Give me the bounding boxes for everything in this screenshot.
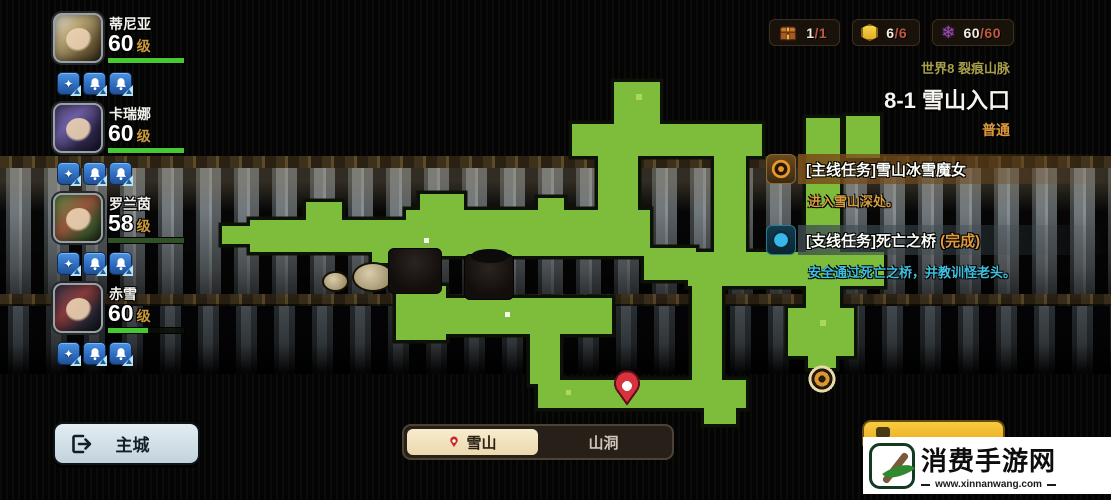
upgrade-arrow-icon <box>122 355 133 366</box>
party-member-2: 卡瑞娜 60级 ✦ <box>0 103 210 191</box>
difficulty-label: 普通 <box>884 120 1010 140</box>
npc-sprite <box>388 248 442 294</box>
tab-label: 雪山 <box>466 432 496 453</box>
objective-marker <box>810 367 834 391</box>
site-watermark: 消费手游网 www.xinnanwang.com <box>863 437 1111 494</box>
rock-sprite <box>322 271 349 292</box>
quest-title: [主线任务]雪山冰雪魔女 <box>806 159 966 180</box>
avatar-face <box>66 118 92 142</box>
upgrade-arrow-icon <box>122 265 133 276</box>
honeycomb-icon <box>861 24 878 41</box>
upgrade-arrow-icon <box>70 175 81 186</box>
area-tabs: 雪山 山洞 <box>402 424 674 460</box>
location-pin-icon <box>448 436 460 448</box>
upgrade-arrow-icon <box>122 85 133 96</box>
avatar-face <box>66 298 92 322</box>
resource-bar: 1/1 6/6 ❄ 60/60 <box>769 19 1014 46</box>
skill-button-bell[interactable] <box>109 252 132 275</box>
quest-desc: 安全通过死亡之桥，并教训怪老头。 <box>808 262 1111 281</box>
watermark-text: 消费手游网 www.xinnanwang.com <box>921 441 1056 490</box>
npc-hat-sprite <box>464 254 514 300</box>
skill-button-emblem[interactable]: ✦ <box>57 342 80 365</box>
game-screen: 蒂尼亚 60级 ✦ 卡瑞娜 60级 ✦ 罗兰茵 58级 ✦ 赤雪 <box>0 0 1111 500</box>
member-level: 58级 <box>108 210 151 237</box>
watermark-logo-icon <box>869 443 915 489</box>
avatar-face <box>66 208 92 232</box>
home-button[interactable]: 主城 <box>53 422 200 465</box>
upgrade-arrow-icon <box>96 175 107 186</box>
party-member-3: 罗兰茵 58级 ✦ <box>0 193 210 281</box>
chest-counter: 1/1 <box>769 19 840 46</box>
avatar[interactable] <box>53 283 103 333</box>
chest-icon <box>778 23 798 43</box>
skill-button-bell[interactable] <box>109 162 132 185</box>
hp-fill <box>108 328 148 333</box>
hp-fill <box>108 148 184 153</box>
upgrade-arrow-icon <box>96 265 107 276</box>
main-quest-target-icon <box>766 154 796 184</box>
avatar[interactable] <box>53 103 103 153</box>
skill-button-emblem[interactable]: ✦ <box>57 162 80 185</box>
miasma-counter: ❄ 60/60 <box>932 19 1014 46</box>
upgrade-arrow-icon <box>70 85 81 96</box>
quest-side[interactable]: [支线任务]死亡之桥 (完成) 安全通过死亡之桥，并教训怪老头。 <box>766 224 1111 281</box>
side-quest-circle-icon <box>766 225 796 255</box>
skill-row: ✦ <box>57 72 132 95</box>
hp-bar <box>107 57 185 64</box>
skill-button-emblem[interactable]: ✦ <box>57 72 80 95</box>
skill-button-emblem[interactable]: ✦ <box>57 252 80 275</box>
member-level: 60级 <box>108 300 151 327</box>
honeycomb-counter: 6/6 <box>852 19 920 46</box>
skill-button-bell[interactable] <box>83 252 106 275</box>
upgrade-arrow-icon <box>70 265 81 276</box>
avatar-face <box>66 28 92 52</box>
world-label: 世界8 裂痕山脉 <box>884 58 1010 77</box>
member-level: 60级 <box>108 120 151 147</box>
home-button-label: 主城 <box>93 431 172 456</box>
member-level: 60级 <box>108 30 151 57</box>
tab-cave[interactable]: 山洞 <box>538 429 669 455</box>
hp-bar <box>107 327 185 334</box>
quest-desc: 进入雪山深处。 <box>808 191 1111 210</box>
upgrade-arrow-icon <box>96 355 107 366</box>
party-member-4: 赤雪 60级 ✦ <box>0 283 210 371</box>
tab-label: 山洞 <box>588 432 618 453</box>
party-member-1: 蒂尼亚 60级 ✦ <box>0 13 210 101</box>
avatar[interactable] <box>53 193 103 243</box>
upgrade-arrow-icon <box>70 355 81 366</box>
skill-button-bell[interactable] <box>109 72 132 95</box>
hp-bar <box>107 237 185 244</box>
quest-title: [支线任务]死亡之桥 (完成) <box>806 230 980 251</box>
upgrade-arrow-icon <box>96 85 107 96</box>
tab-snow-mountain[interactable]: 雪山 <box>407 429 538 455</box>
avatar[interactable] <box>53 13 103 63</box>
watermark-site-name: 消费手游网 <box>921 441 1056 478</box>
skill-button-bell[interactable] <box>83 72 106 95</box>
exit-icon <box>69 432 93 456</box>
purple-snowflake-icon: ❄ <box>941 24 955 41</box>
quest-main[interactable]: [主线任务]雪山冰雪魔女 进入雪山深处。 <box>766 153 1111 210</box>
upgrade-arrow-icon <box>122 175 133 186</box>
stage-header: 世界8 裂痕山脉 8-1 雪山入口 普通 <box>884 58 1010 140</box>
skill-button-bell[interactable] <box>83 162 106 185</box>
skill-row: ✦ <box>57 252 132 275</box>
skill-button-bell[interactable] <box>83 342 106 365</box>
skill-row: ✦ <box>57 342 132 365</box>
skill-button-bell[interactable] <box>109 342 132 365</box>
hp-fill <box>108 58 184 63</box>
stage-title: 8-1 雪山入口 <box>884 83 1010 115</box>
hp-bar <box>107 147 185 154</box>
quest-tracker: [主线任务]雪山冰雪魔女 进入雪山深处。 [支线任务]死亡之桥 (完成) 安全通… <box>766 153 1111 295</box>
skill-row: ✦ <box>57 162 132 185</box>
hp-fill <box>108 238 184 243</box>
watermark-site-url: www.xinnanwang.com <box>921 479 1056 490</box>
